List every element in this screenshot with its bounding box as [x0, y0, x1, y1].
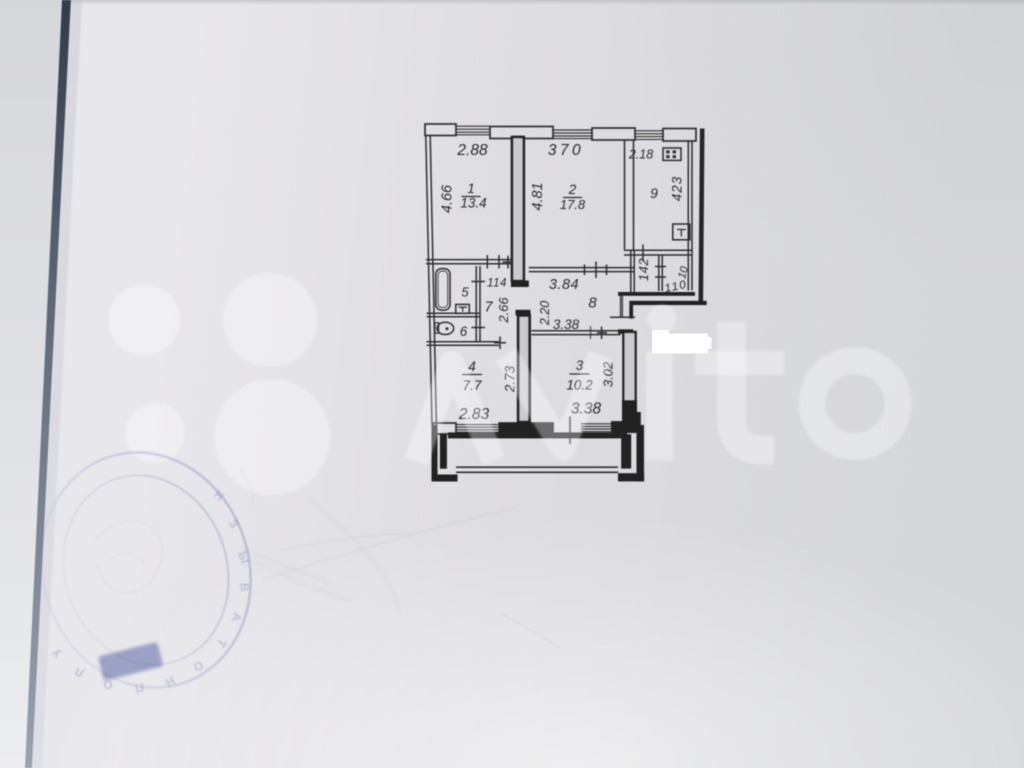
svg-text:114: 114 — [487, 278, 507, 290]
svg-text:З: З — [226, 517, 242, 531]
svg-text:7: 7 — [484, 300, 493, 316]
svg-text:4: 4 — [468, 359, 476, 374]
svg-text:4.81: 4.81 — [530, 182, 546, 210]
svg-text:А: А — [229, 611, 245, 623]
svg-text:1: 1 — [467, 181, 475, 196]
svg-text:Л: Л — [73, 664, 86, 680]
svg-text:5: 5 — [461, 285, 469, 300]
svg-text:142: 142 — [636, 258, 651, 281]
svg-text:423: 423 — [670, 176, 685, 202]
svg-text:П: П — [134, 680, 145, 695]
svg-text:17.8: 17.8 — [560, 197, 586, 212]
svg-text:13.4: 13.4 — [460, 196, 486, 211]
svg-text:У: У — [49, 645, 64, 661]
svg-text:8: 8 — [588, 295, 597, 312]
svg-text:6: 6 — [460, 324, 468, 339]
svg-text:2.66: 2.66 — [496, 297, 511, 324]
svg-text:2: 2 — [568, 182, 577, 197]
svg-text:2.20: 2.20 — [538, 301, 552, 326]
svg-text:4.66: 4.66 — [440, 184, 456, 213]
svg-text:9: 9 — [650, 185, 658, 201]
svg-text:3.38: 3.38 — [553, 317, 580, 332]
svg-text:2.18: 2.18 — [628, 148, 653, 162]
svg-text:Т: Т — [213, 637, 229, 651]
svg-text:В: В — [237, 583, 251, 592]
svg-text:370: 370 — [548, 142, 584, 159]
svg-text:2.88: 2.88 — [456, 142, 488, 159]
svg-text:3.84: 3.84 — [549, 277, 579, 293]
